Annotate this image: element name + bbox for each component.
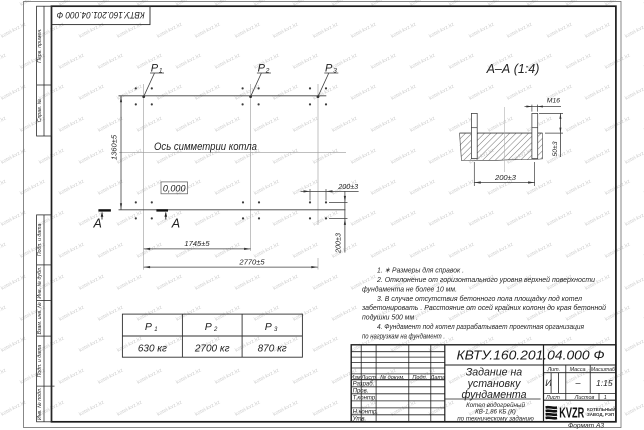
- svg-text:Перв. примен.: Перв. примен.: [37, 28, 43, 62]
- svg-text:1: 1: [154, 327, 157, 333]
- svg-text:М16: М16: [547, 98, 560, 105]
- svg-text:КВТУ.160.201.04.000 Ф: КВТУ.160.201.04.000 Ф: [56, 9, 144, 20]
- svg-text:Задание на: Задание на: [466, 367, 523, 379]
- svg-text:фундамента: фундамента: [461, 389, 526, 401]
- svg-text:по нагрузкам на фундамент .: по нагрузкам на фундамент .: [362, 331, 445, 340]
- svg-text:630 кг: 630 кг: [138, 344, 167, 355]
- svg-text:Т.контр.: Т.контр.: [353, 396, 377, 402]
- svg-text:фундамента не более 10 мм.: фундамента не более 10 мм.: [362, 284, 457, 293]
- svg-text:Пров.: Пров.: [353, 389, 369, 395]
- svg-text:870 кг: 870 кг: [258, 344, 287, 355]
- svg-text:200±3: 200±3: [333, 233, 342, 254]
- svg-text:2. Отклонение от горизонтал: 2. Отклонение от горизонтального уровня …: [376, 275, 596, 284]
- svg-text:Лит.: Лит.: [546, 367, 560, 373]
- svg-text:P: P: [258, 62, 266, 74]
- svg-text:А–А (1:4): А–А (1:4): [486, 62, 540, 76]
- svg-text:Н.контр.: Н.контр.: [353, 410, 378, 416]
- svg-text:Формат А3: Формат А3: [568, 423, 604, 430]
- svg-text:Справ. №: Справ. №: [37, 98, 43, 122]
- svg-text:Лист: Лист: [545, 395, 560, 401]
- svg-text:200±3: 200±3: [494, 173, 517, 182]
- svg-text:3. В случае отсутствия бет: 3. В случае отсутствия бетонного пола пл…: [377, 294, 583, 303]
- svg-text:А: А: [171, 217, 180, 231]
- svg-text:установку: установку: [467, 378, 521, 390]
- svg-text:P: P: [325, 62, 333, 74]
- svg-text:1: 1: [159, 67, 163, 74]
- svg-text:Листов: Листов: [574, 395, 595, 401]
- svg-text:200±3: 200±3: [337, 182, 358, 191]
- svg-text:А: А: [93, 217, 102, 231]
- svg-text:Масса: Масса: [570, 367, 586, 373]
- svg-text:–: –: [574, 378, 581, 388]
- svg-text:2770±5: 2770±5: [238, 257, 265, 266]
- svg-text:1360±5: 1360±5: [110, 134, 119, 160]
- svg-text:Изм.: Изм.: [350, 375, 362, 381]
- svg-text:№ докум.: № докум.: [380, 375, 405, 381]
- svg-text:P: P: [265, 321, 272, 333]
- svg-text:Подп. и дата: Подп. и дата: [37, 224, 43, 257]
- svg-text:Инв. № дубл.: Инв. № дубл.: [37, 267, 43, 299]
- svg-text:3: 3: [333, 67, 337, 74]
- svg-text:Подп.: Подп.: [412, 375, 427, 381]
- svg-text:И: И: [545, 378, 552, 388]
- svg-text:P: P: [145, 321, 152, 333]
- svg-text:Масштаб: Масштаб: [591, 367, 616, 373]
- svg-text:Взам. инв. №: Взам. инв. №: [37, 302, 43, 334]
- svg-text:подушки 500 мм .: подушки 500 мм .: [362, 313, 418, 322]
- svg-text:2700 кг: 2700 кг: [194, 344, 230, 355]
- svg-text:Ось симметрии котла: Ось симметрии котла: [154, 141, 257, 153]
- svg-text:1: 1: [604, 395, 607, 401]
- svg-text:50±3: 50±3: [552, 141, 559, 156]
- svg-text:по техническому заданию: по техническому заданию: [457, 415, 534, 422]
- svg-text:Лист: Лист: [360, 375, 376, 381]
- svg-text:забетонировать . Расстояние: забетонировать . Расстояние от осей край…: [361, 303, 607, 312]
- svg-text:Дата: Дата: [429, 375, 445, 381]
- svg-text:1745±5: 1745±5: [184, 239, 210, 248]
- svg-text:Инв. № подл.: Инв. № подл.: [37, 388, 43, 420]
- svg-text:Утв.: Утв.: [352, 417, 367, 423]
- svg-text:Разраб.: Разраб.: [353, 382, 375, 388]
- svg-text:4. Фундамент под котел раз: 4. Фундамент под котел разрабатывает про…: [377, 322, 584, 331]
- svg-text:2: 2: [213, 327, 218, 333]
- svg-text:Подп. и дата: Подп. и дата: [37, 345, 43, 378]
- svg-text:0,000: 0,000: [163, 183, 186, 193]
- svg-text:1:15: 1:15: [596, 378, 613, 388]
- svg-text:2: 2: [265, 67, 270, 74]
- svg-text:1. ∗ Размеры для справок .: 1. ∗ Размеры для справок .: [377, 266, 464, 275]
- svg-text:КВТУ.160.201.04.000 Ф: КВТУ.160.201.04.000 Ф: [457, 348, 605, 363]
- svg-text:P: P: [151, 62, 159, 74]
- svg-text:KVZR: KVZR: [559, 406, 584, 422]
- svg-text:P: P: [205, 321, 212, 333]
- svg-text:ЗАВОД, РЭП: ЗАВОД, РЭП: [587, 412, 614, 417]
